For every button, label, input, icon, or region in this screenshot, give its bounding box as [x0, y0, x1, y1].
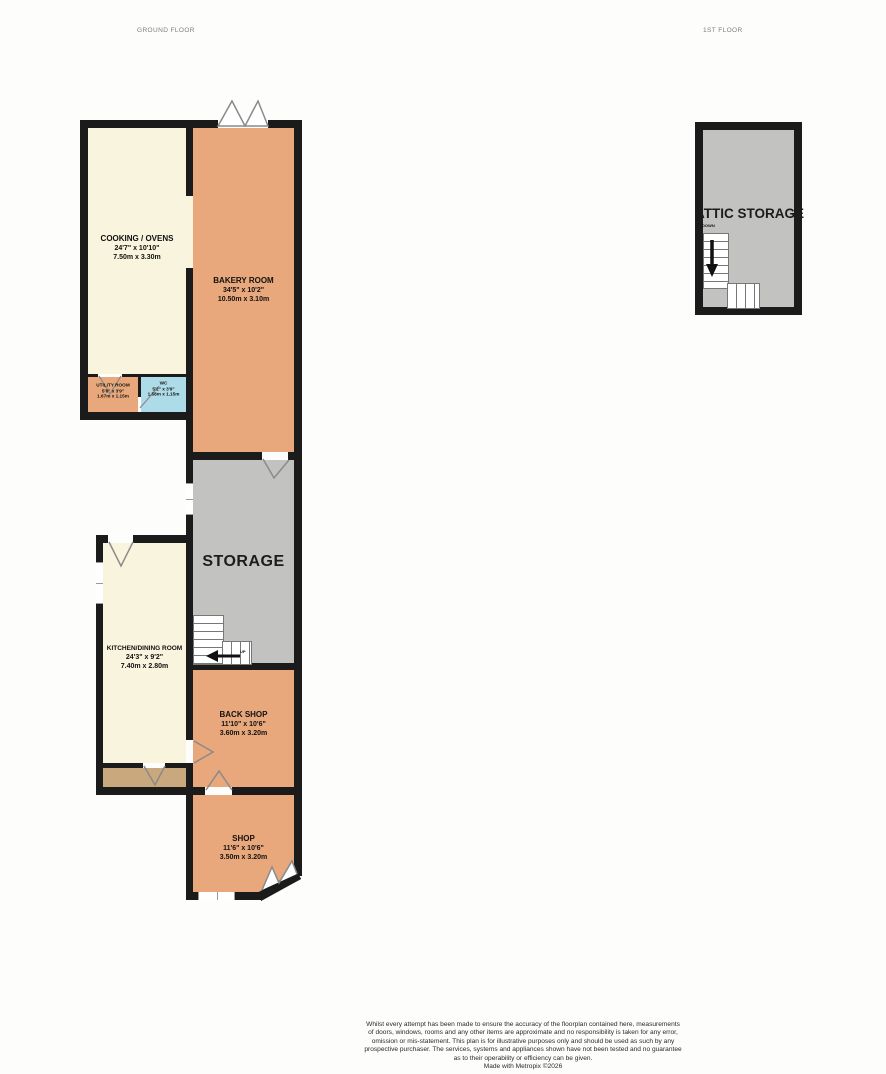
opening-cooking-bakery — [186, 196, 193, 268]
wall — [96, 535, 103, 562]
wall — [80, 412, 193, 420]
wall — [122, 374, 186, 377]
window — [96, 562, 103, 604]
wall — [186, 513, 193, 740]
double-door-swing — [245, 101, 268, 126]
label-shop: SHOP 11'6" x 10'6" 3.50m x 3.20m — [193, 834, 294, 862]
wall — [186, 787, 205, 795]
double-door-swing — [218, 101, 245, 126]
wall — [186, 763, 193, 900]
staircase — [727, 283, 760, 309]
wall — [186, 120, 193, 196]
wall — [232, 787, 302, 795]
wall — [695, 122, 802, 130]
hallway-strip — [103, 768, 186, 787]
credit-line: Made with Metropix ©2026 — [263, 1063, 783, 1071]
wall — [96, 602, 103, 795]
window — [198, 892, 235, 900]
label-back-shop: BACK SHOP 11'10" x 10'6" 3.60m x 3.20m — [193, 710, 294, 738]
wall — [96, 787, 193, 795]
staircase — [703, 233, 729, 289]
label-up: UP — [240, 650, 246, 654]
wall — [80, 120, 88, 420]
disclaimer-line: omission or mis-statement. This plan is … — [263, 1038, 783, 1046]
wall — [165, 763, 186, 768]
wall — [133, 535, 193, 543]
wall — [186, 892, 198, 900]
wall — [294, 120, 302, 876]
disclaimer-line: of doors, windows, rooms and any other i… — [263, 1029, 783, 1037]
label-bakery-room: BAKERY ROOM 34'5" x 10'2" 10.50m x 3.10m — [193, 276, 294, 304]
disclaimer-line: prospective purchaser. The services, sys… — [263, 1046, 783, 1054]
wall — [80, 120, 218, 128]
floorplan-canvas: GROUND FLOOR 1ST FLOOR — [0, 0, 886, 1074]
disclaimer-line: as to their operability or efficiency ca… — [263, 1055, 783, 1063]
label-down: DOWN — [702, 224, 715, 228]
wall — [138, 377, 141, 397]
wall — [186, 268, 193, 483]
wall — [186, 452, 262, 460]
label-storage: STORAGE — [193, 553, 294, 571]
disclaimer-line: Whilst every attempt has been made to en… — [263, 1021, 783, 1029]
disclaimer: Whilst every attempt has been made to en… — [263, 1021, 783, 1071]
label-cooking-ovens: COOKING / OVENS 24'7" x 10'10" 7.50m x 3… — [88, 234, 186, 262]
wall — [233, 892, 262, 900]
label-utility-room: UTILITY ROOM 5'6" x 3'9" 1.67m x 1.15m — [94, 383, 133, 399]
first-floor-label: 1ST FLOOR — [703, 27, 743, 34]
label-wc: WC 5'2" x 3'9" 1.58m x 1.15m — [146, 381, 181, 397]
label-attic-storage: ATTIC STORAGE — [695, 206, 802, 221]
wall — [288, 452, 302, 460]
ground-floor-label: GROUND FLOOR — [137, 27, 195, 34]
window — [186, 483, 193, 515]
staircase — [222, 641, 252, 665]
wall — [103, 763, 143, 768]
label-kitchen-dining: KITCHEN/DINING ROOM 24'3" x 9'2" 7.40m x… — [100, 645, 189, 671]
wall — [88, 374, 98, 377]
staircase — [193, 615, 224, 665]
door-threshold — [218, 124, 268, 126]
